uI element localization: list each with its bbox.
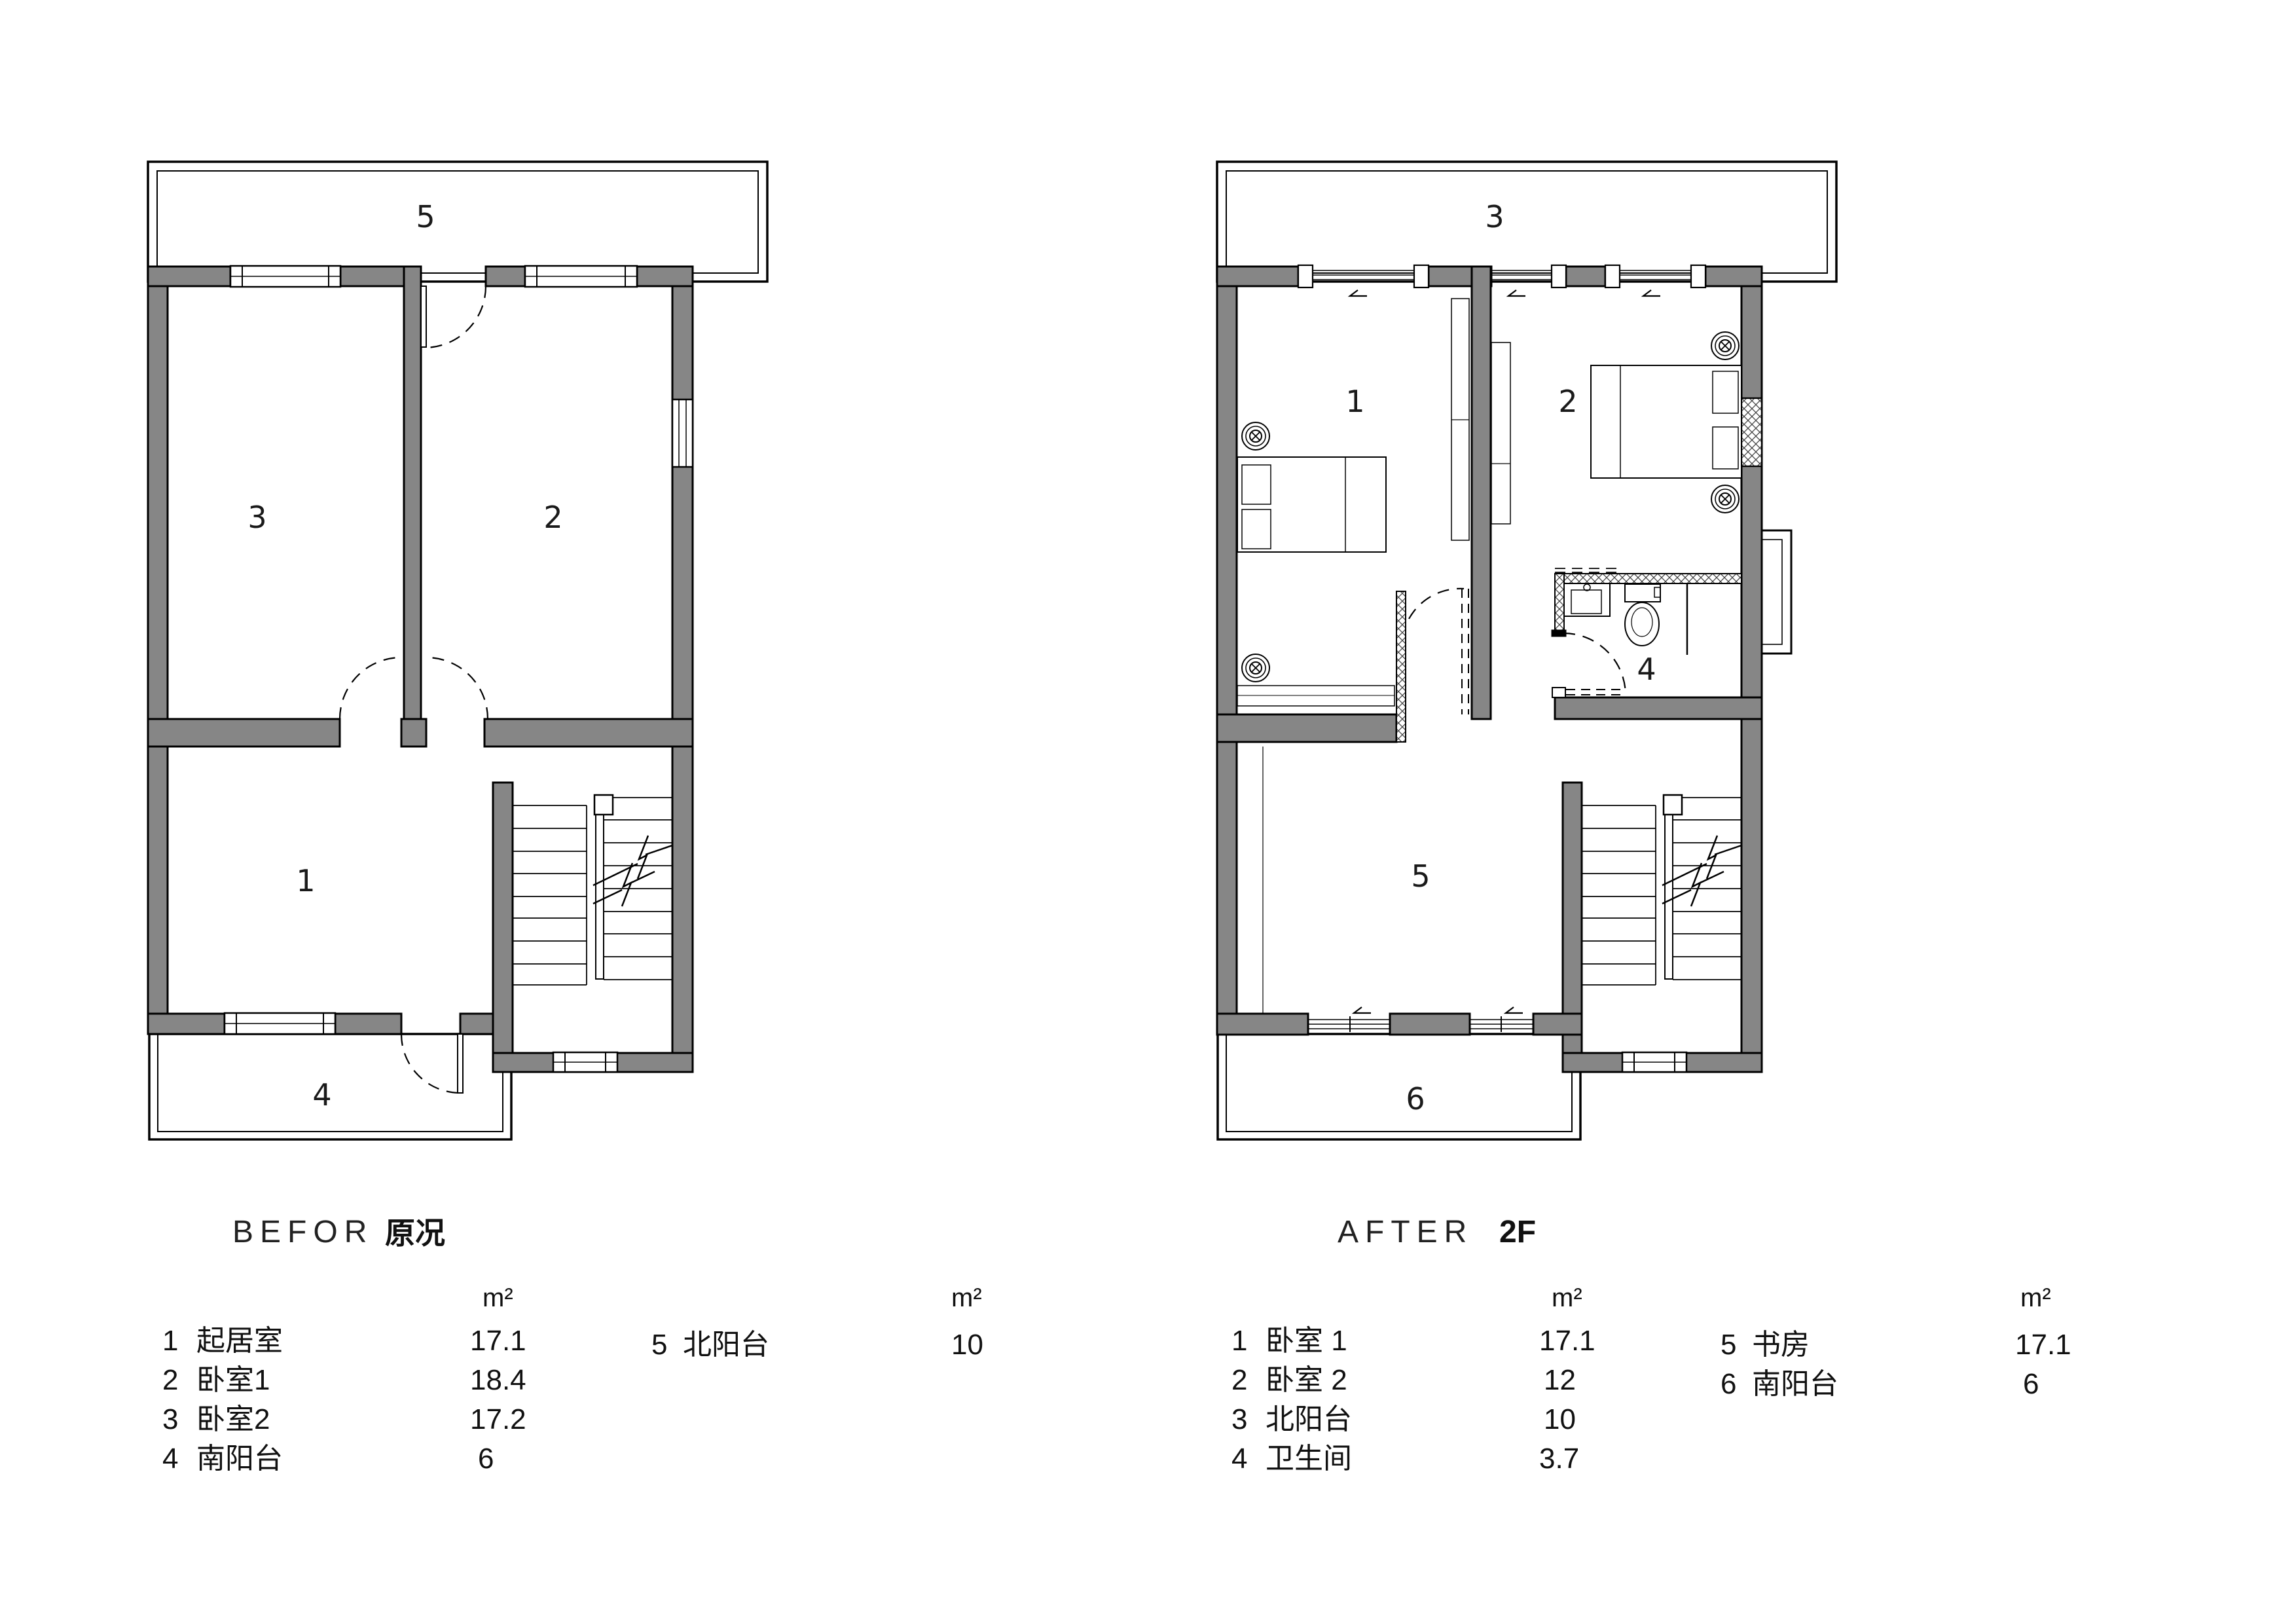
legend-area: 17.2 — [470, 1405, 526, 1434]
before-title-en: BEFOR — [232, 1217, 373, 1248]
door-leaf — [458, 1034, 463, 1093]
room-label-bathroom: 4 — [1637, 652, 1656, 687]
legend-name: 北阳台 — [683, 1331, 769, 1359]
legend-area: 12 — [1544, 1366, 1576, 1395]
wardrobe-icon — [1451, 299, 1469, 540]
room-label-south-balcony: 6 — [1406, 1081, 1425, 1116]
window-jamb — [1414, 265, 1429, 287]
legend-num: 1 — [1231, 1327, 1247, 1356]
floorplan-page: 5 3 2 1 4 — [0, 0, 2296, 1624]
after-bedroom1-door — [1396, 589, 1468, 742]
legend-area: 10 — [951, 1331, 983, 1359]
after-bay-window — [1762, 530, 1791, 654]
room-label-living: 1 — [296, 863, 315, 898]
door-leaf — [421, 286, 426, 347]
window-jamb — [1691, 265, 1705, 287]
legend-area: 6 — [478, 1445, 494, 1473]
sink-icon — [1564, 583, 1610, 616]
after-right-wall-infill — [1741, 398, 1762, 466]
bathroom-door — [1552, 633, 1626, 697]
legend-name: 卧室1 — [196, 1366, 270, 1395]
legend-name: 书房 — [1752, 1331, 1810, 1359]
room-label-bedroom2: 2 — [1558, 384, 1577, 419]
legend-num: 4 — [162, 1445, 178, 1473]
legend-num: 3 — [162, 1405, 178, 1434]
after-plan: 3 1 2 4 5 6 — [1217, 162, 1836, 1139]
before-windows — [225, 266, 693, 1072]
slide-direction-arrow-icon — [1354, 1007, 1523, 1013]
before-north-balcony — [148, 162, 767, 282]
legend-name: 南阳台 — [1752, 1370, 1838, 1399]
ceiling-lamp-icon — [1242, 654, 1269, 682]
legend-area: 17.1 — [2015, 1331, 2071, 1359]
door-swing-arc — [426, 657, 488, 719]
legend-area: 6 — [2023, 1370, 2039, 1399]
room-label-south-balcony: 4 — [312, 1077, 331, 1113]
door-swing-arc — [1563, 633, 1626, 695]
stair-railing — [1665, 798, 1673, 979]
area-unit-header: m² — [1552, 1285, 1582, 1311]
legend-name: 卧室 1 — [1266, 1327, 1347, 1356]
before-walls — [148, 267, 693, 1072]
legend-num: 2 — [162, 1366, 178, 1395]
legend-num: 4 — [1231, 1445, 1247, 1473]
legend-name: 卫生间 — [1266, 1445, 1352, 1473]
door-swing-arc — [1409, 589, 1464, 619]
room-label-north-balcony: 5 — [416, 199, 435, 234]
after-south-balcony — [1218, 1034, 1580, 1139]
legend-area: 17.1 — [1539, 1327, 1595, 1356]
before-title-cn: 原况 — [385, 1218, 445, 1248]
after-stair-window — [1622, 1052, 1686, 1072]
after-title-floor: 2F — [1499, 1217, 1536, 1248]
door-swing-arc — [401, 1034, 460, 1093]
legend-area: 18.4 — [470, 1366, 526, 1395]
desk-icon — [1237, 686, 1394, 706]
slide-direction-arrow-icon — [1350, 290, 1660, 296]
room-label-bedroom1: 1 — [1345, 384, 1364, 419]
after-title-en: AFTER — [1338, 1217, 1473, 1248]
legend-num: 1 — [162, 1327, 178, 1356]
ceiling-lamp-icon — [1711, 332, 1739, 360]
door-swing-arc — [424, 286, 486, 348]
room-label-north-balcony: 3 — [1485, 199, 1504, 234]
area-unit-header: m² — [2020, 1285, 2051, 1311]
after-room-labels: 3 1 2 4 5 6 — [1345, 199, 1656, 1116]
legend-name: 南阳台 — [196, 1445, 283, 1473]
legend-area: 3.7 — [1539, 1445, 1579, 1473]
stair-break-line-icon — [593, 836, 672, 906]
legend-num: 2 — [1231, 1366, 1247, 1395]
window-icon — [553, 1052, 617, 1072]
legend-num: 6 — [1721, 1370, 1736, 1399]
window-jamb — [1298, 265, 1313, 287]
area-unit-header: m² — [951, 1285, 982, 1311]
legend-num: 5 — [1721, 1331, 1736, 1359]
stair-newel — [594, 795, 613, 815]
toilet-icon — [1625, 584, 1660, 646]
before-plan: 5 3 2 1 4 — [148, 162, 767, 1139]
area-unit-header: m² — [483, 1285, 513, 1311]
stair-newel — [1664, 795, 1682, 815]
door-swing-arc — [340, 657, 401, 719]
after-staircase — [1582, 795, 1741, 985]
window-icon — [230, 266, 340, 287]
window-icon — [525, 266, 637, 287]
window-jamb — [1552, 265, 1566, 287]
window-icon — [672, 399, 693, 467]
window-jamb — [1605, 265, 1620, 287]
bed-icon — [1237, 457, 1386, 552]
ceiling-lamp-icon — [1242, 422, 1269, 450]
room-label-bedroom1: 2 — [543, 500, 562, 535]
ceiling-lamp-icon — [1711, 485, 1739, 513]
wardrobe-icon — [1491, 342, 1510, 524]
legend-num: 5 — [651, 1331, 667, 1359]
window-icon — [225, 1013, 335, 1034]
room-label-study: 5 — [1411, 858, 1430, 894]
after-north-balcony — [1217, 162, 1836, 282]
floorplan-drawing: 5 3 2 1 4 — [0, 0, 2296, 1624]
legend-name: 卧室2 — [196, 1405, 270, 1434]
legend-area: 17.1 — [470, 1327, 526, 1356]
legend-name: 北阳台 — [1266, 1405, 1352, 1434]
legend-name: 起居室 — [196, 1327, 283, 1356]
stair-railing — [596, 798, 604, 979]
room-label-bedroom2: 3 — [247, 500, 266, 535]
legend-area: 10 — [1544, 1405, 1576, 1434]
legend-name: 卧室 2 — [1266, 1366, 1347, 1395]
legend-num: 3 — [1231, 1405, 1247, 1434]
sliding-window-icon — [1313, 270, 1691, 280]
bed-icon — [1591, 365, 1741, 478]
stair-break-line-icon — [1662, 836, 1741, 906]
before-staircase — [513, 795, 672, 985]
